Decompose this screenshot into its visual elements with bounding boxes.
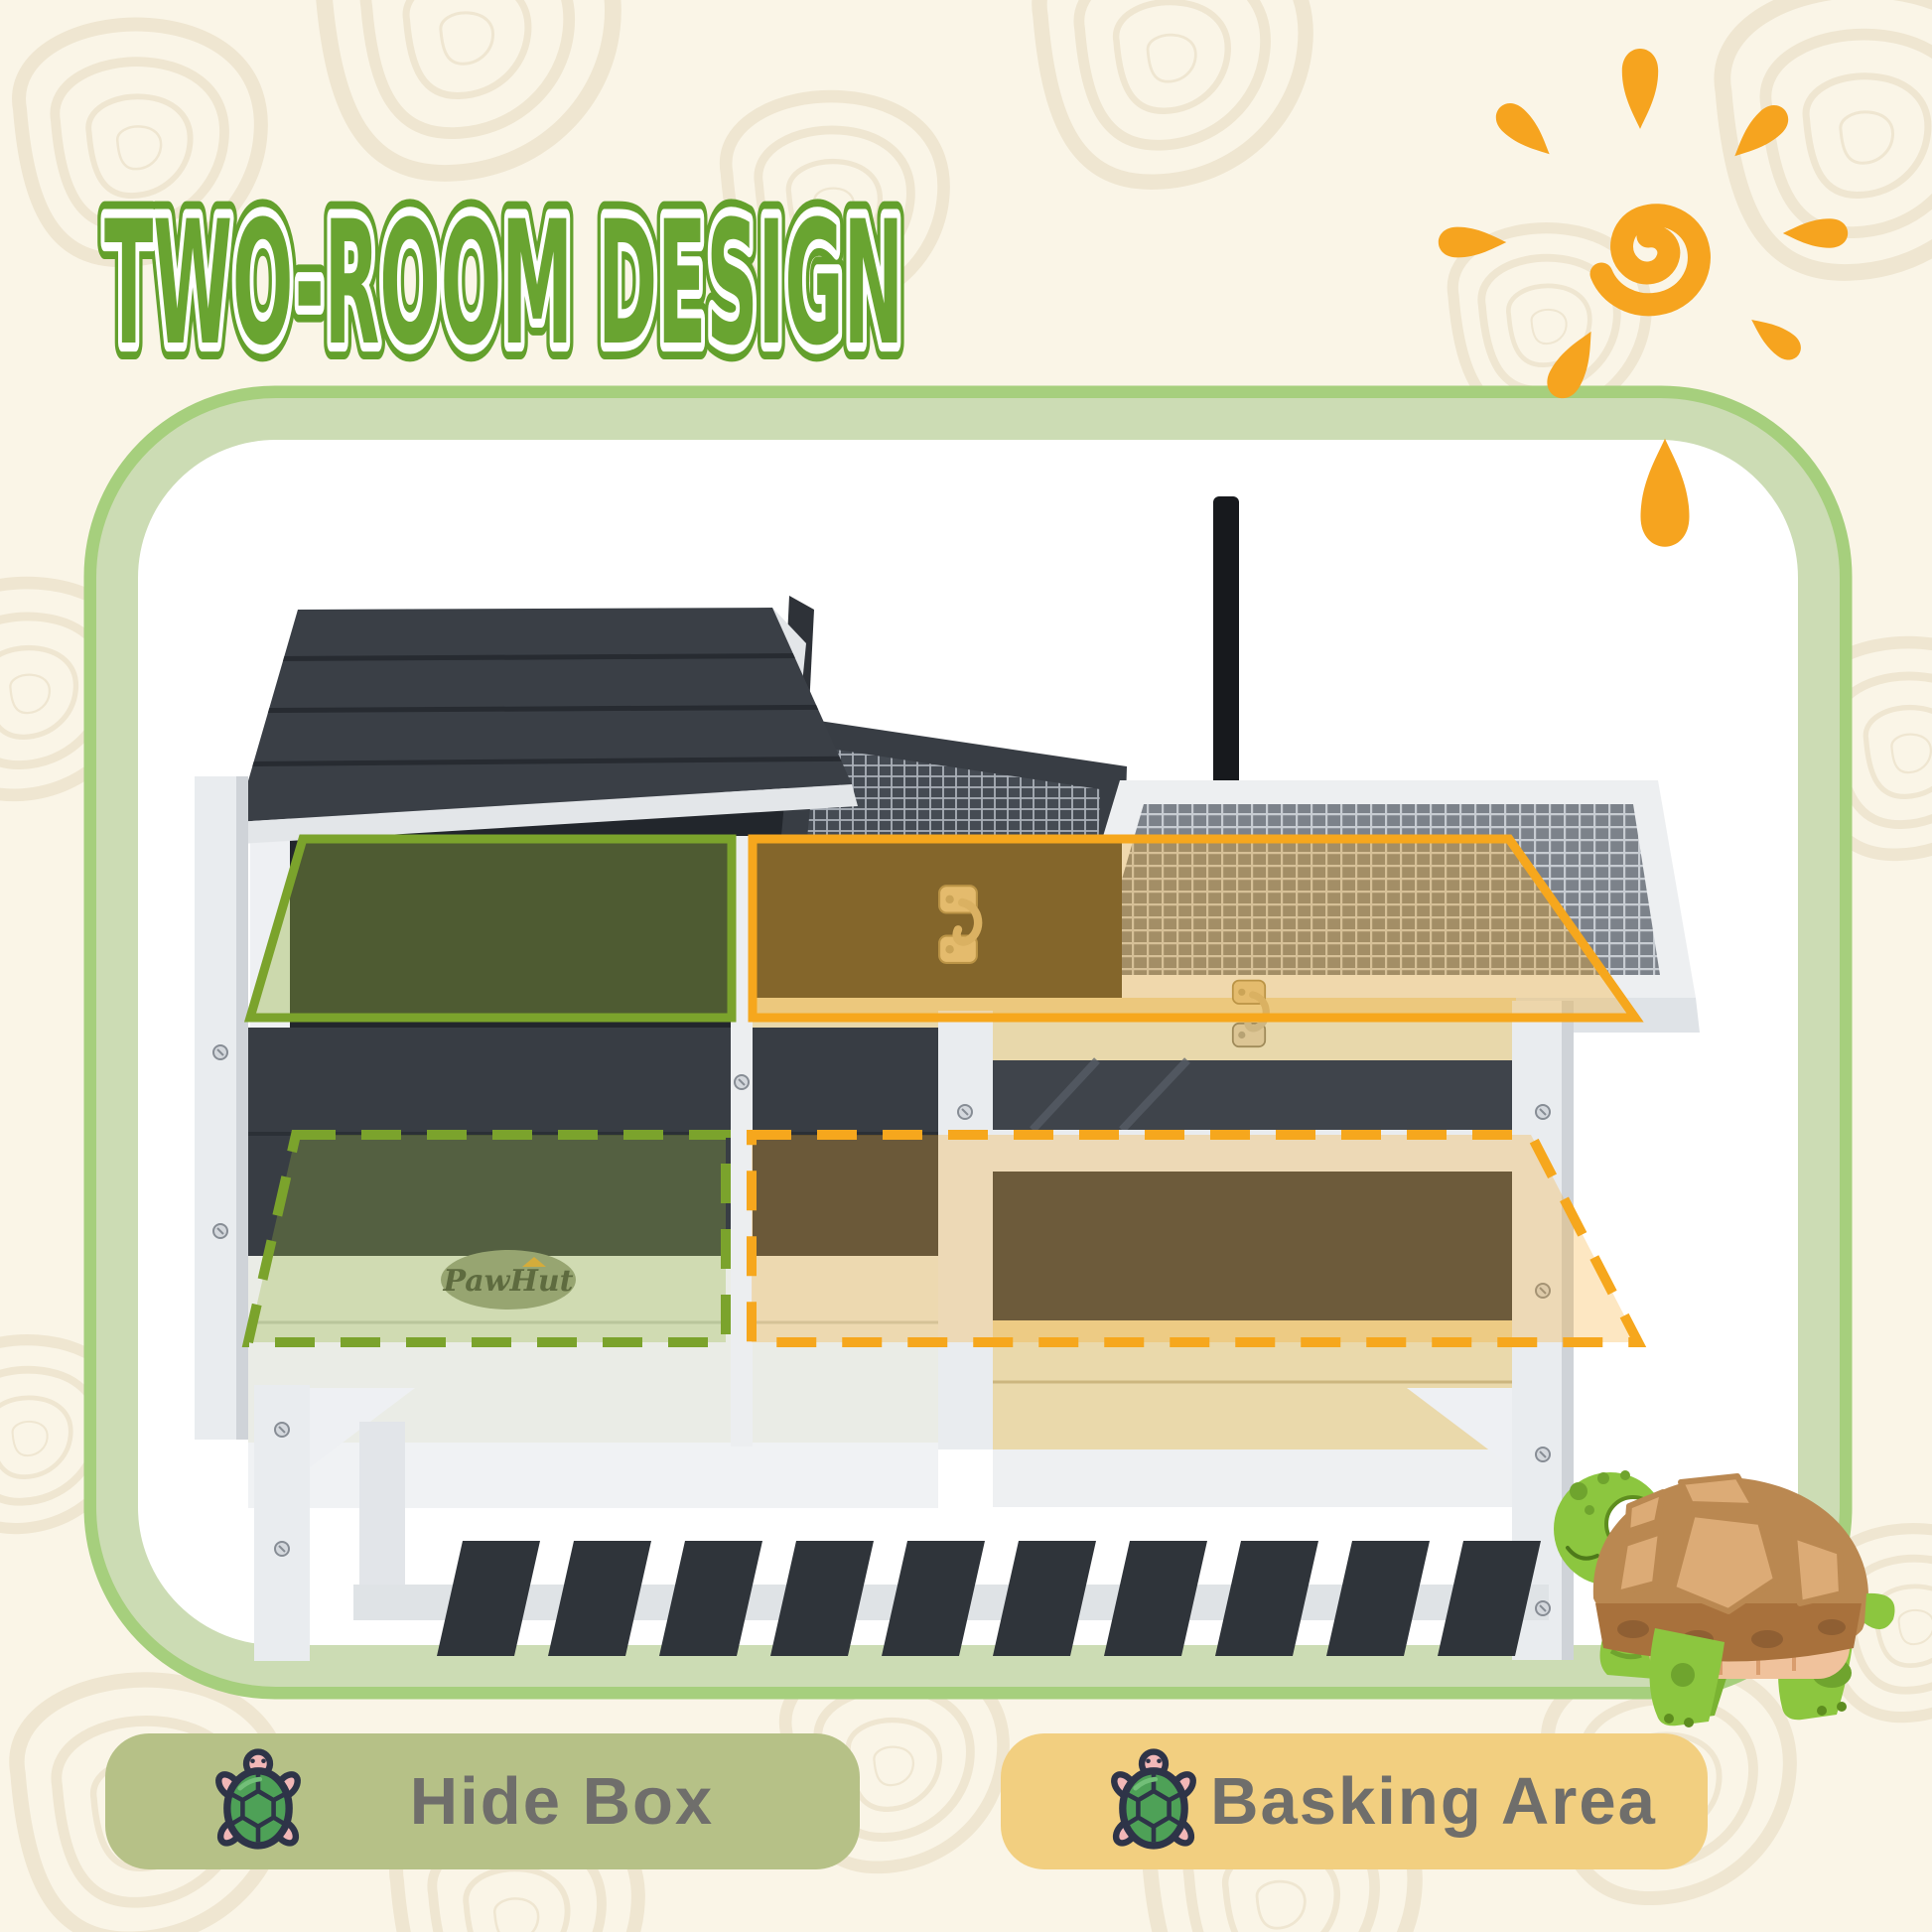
legend-hide-box-label: Hide Box [304,1763,860,1840]
acrylic-window [993,1060,1512,1130]
turtle-icon [212,1747,304,1857]
lamp-pole [1213,496,1239,824]
product-infographic-canvas: TWO-ROOM DESIGN TWO-ROOM DESIGN TWO-ROOM… [0,0,1932,1932]
legend-basking-area: Basking Area [1001,1733,1708,1869]
infographic: TWO-ROOM DESIGN TWO-ROOM DESIGN TWO-ROOM… [0,0,1932,1932]
legend-basking-area-label: Basking Area [1199,1763,1708,1840]
svg-text:TWO-ROOM DESIGN: TWO-ROOM DESIGN [104,186,903,383]
turtle-icon [1108,1747,1199,1857]
page-title: TWO-ROOM DESIGN TWO-ROOM DESIGN TWO-ROOM… [104,186,903,383]
legend-hide-box: Hide Box [105,1733,860,1869]
house-roof [199,596,874,844]
